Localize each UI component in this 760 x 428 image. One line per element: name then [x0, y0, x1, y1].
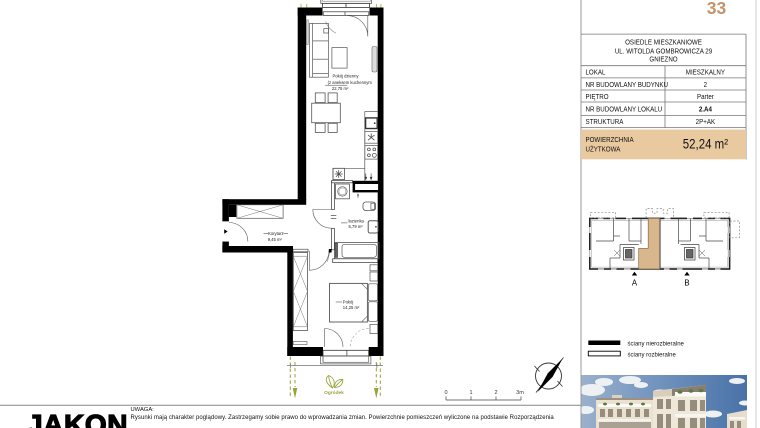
svg-text:B: B: [684, 279, 689, 288]
svg-text:łazienka: łazienka: [349, 218, 365, 223]
svg-text:5,79 m²: 5,79 m²: [349, 224, 364, 229]
svg-text:Ogródek: Ogródek: [324, 390, 344, 396]
svg-text:OSIEDLE MIESZKANIOWE: OSIEDLE MIESZKANIOWE: [625, 39, 702, 47]
svg-text:2: 2: [704, 82, 708, 90]
svg-text:PIĘTRO: PIĘTRO: [585, 94, 608, 102]
svg-text:JAKON: JAKON: [27, 409, 128, 428]
svg-text:Parter: Parter: [697, 94, 715, 102]
svg-text:22,75 m²: 22,75 m²: [332, 86, 349, 91]
svg-text:14,25 m²: 14,25 m²: [343, 305, 360, 310]
svg-text:ściany nierozbieralne: ściany nierozbieralne: [628, 342, 685, 348]
svg-text:0: 0: [444, 390, 447, 396]
svg-text:GNIEZNO: GNIEZNO: [649, 56, 677, 64]
svg-text:Rysunki mają charakter pog: Rysunki mają charakter poglądowy. Zastrz…: [131, 415, 555, 421]
svg-text:2.A4: 2.A4: [699, 106, 712, 114]
svg-text:STRUKTURA: STRUKTURA: [585, 119, 623, 127]
svg-text:2: 2: [494, 390, 497, 396]
svg-text:MIESZKALNY: MIESZKALNY: [686, 69, 726, 77]
svg-text:NR BUDOWLANY BUDYNKU: NR BUDOWLANY BUDYNKU: [585, 82, 668, 90]
svg-text:1: 1: [469, 390, 472, 396]
svg-text:33: 33: [707, 0, 727, 18]
svg-text:A: A: [632, 279, 638, 288]
svg-text:Pokój: Pokój: [343, 299, 354, 304]
svg-text:NR BUDOWLANY LOKALU: NR BUDOWLANY LOKALU: [585, 106, 662, 114]
svg-text:52,24 m²: 52,24 m²: [683, 137, 728, 152]
svg-text:Korytarz: Korytarz: [268, 231, 284, 236]
svg-text:UŻYTKOWA: UŻYTKOWA: [585, 144, 620, 154]
svg-text:(z aneksem kuchennym: (z aneksem kuchennym: [328, 80, 373, 85]
svg-text:UWAGA:: UWAGA:: [131, 407, 155, 413]
svg-text:UL. WITOLDA GOMBROWICZA 29: UL. WITOLDA GOMBROWICZA 29: [615, 48, 713, 56]
svg-text:9,45 m²: 9,45 m²: [268, 237, 283, 242]
svg-text:2P+AK: 2P+AK: [696, 119, 716, 127]
svg-text:3m: 3m: [516, 390, 524, 396]
svg-text:POWIERZCHNIA: POWIERZCHNIA: [585, 137, 634, 145]
svg-text:ściany rozbieralne: ściany rozbieralne: [628, 352, 677, 358]
svg-text:Pokój dzienny: Pokój dzienny: [333, 74, 360, 79]
svg-text:LOKAL: LOKAL: [585, 69, 605, 77]
